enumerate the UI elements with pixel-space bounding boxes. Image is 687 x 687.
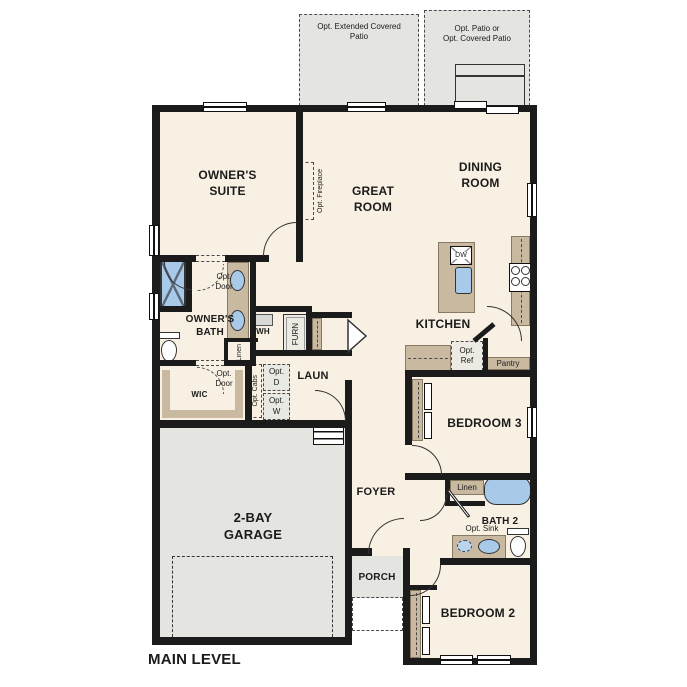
opt-washer: Opt. W (263, 393, 290, 420)
floor-plan: Opt. Extended Covered Patio Opt. Patio o… (0, 0, 687, 687)
opt-refrigerator-label: Opt. Ref (459, 346, 474, 367)
opt-opening-suite (196, 255, 225, 262)
wall-coat-closet-top (312, 312, 352, 318)
coat-closet-bifold-icon (347, 318, 369, 354)
wall-foyer-right (403, 548, 410, 658)
window-great-room (347, 102, 386, 112)
garage-label: 2-BAY GARAGE (205, 510, 301, 544)
opt-refrigerator: Opt. Ref (451, 341, 483, 371)
wall-wic-right (245, 366, 252, 422)
window-suite-left (149, 225, 159, 256)
bedroom3-closet-slider-a (424, 383, 432, 410)
wall-bedroom3-left (405, 377, 412, 445)
wall-garage-right (345, 420, 352, 645)
island-sink (455, 267, 472, 294)
opt-fireplace-label: Opt. Fireplace (317, 169, 324, 213)
water-heater (253, 314, 273, 326)
wall-laundry-hall (345, 380, 352, 420)
window-bedroom2-b (477, 655, 511, 665)
linen-owners-box: Linen (228, 340, 250, 366)
dishwasher-label: DW (454, 252, 468, 259)
coat-closet-shelf (312, 318, 322, 350)
patio-right-label: Opt. Patio or Opt. Covered Patio (426, 24, 528, 45)
laundry-label: LAUN (292, 369, 334, 383)
wall-suite-bottom-b (225, 255, 269, 262)
wall-suite-right (296, 112, 303, 262)
bedroom2-label: BEDROOM 2 (420, 606, 536, 622)
bath2-linen-closet: Linen (450, 480, 484, 495)
furnace: FURN (283, 314, 308, 354)
dishwasher: DW (450, 246, 472, 265)
window-bath-left (149, 293, 159, 320)
window-dining (527, 183, 537, 217)
bath2-opt-sink-oval (457, 540, 472, 552)
opt-door-bath-label: Opt. Door (206, 272, 242, 293)
bedroom3-label: BEDROOM 3 (432, 416, 537, 432)
wall-linen2-bottom (445, 501, 485, 506)
garage-door-outline (172, 556, 333, 637)
wic-label: WIC (172, 390, 227, 400)
main-level-label: MAIN LEVEL (148, 650, 278, 670)
porch-label: PORCH (351, 571, 403, 584)
sliding-door-panel-a (454, 101, 487, 109)
linen-owners-label: Linen (236, 344, 243, 361)
wall-garage-bottom (152, 637, 352, 645)
bathtub (484, 476, 531, 505)
garage-entry-steps (313, 425, 344, 445)
bedroom2-closet-slider-b (422, 627, 430, 655)
opt-dryer-label: Opt. D (269, 367, 284, 388)
opt-fireplace-labelbox: Opt. Fireplace (314, 158, 326, 224)
wall-left (152, 105, 160, 645)
pantry-label: Pantry (496, 359, 519, 368)
opt-opening-wic (196, 360, 224, 366)
kitchen-label: KITCHEN (408, 317, 478, 333)
wall-bedroom3-top (405, 370, 530, 377)
great-room-label: GREAT ROOM (333, 184, 413, 215)
owners-bath-label: OWNER'S BATH (170, 313, 250, 339)
wall-utility-bottom (250, 350, 352, 356)
kitchen-counter-bottom (405, 345, 451, 371)
bedroom2-closet-shelf (410, 590, 421, 658)
opt-washer-label: Opt. W (269, 396, 284, 417)
patio-slab-outline (455, 64, 525, 105)
wall-bedroom2-top (440, 558, 537, 565)
wall-pantry-left (483, 338, 488, 372)
bedroom3-closet-slider-b (424, 412, 432, 439)
window-suite-top (203, 102, 247, 112)
pantry-shelf: Pantry (486, 357, 530, 370)
window-bedroom2-a (440, 655, 473, 665)
opt-door-wic-label: Opt. Door (206, 369, 242, 390)
porch-extension-outline (352, 598, 403, 631)
bath2-toilet-tank (507, 528, 529, 535)
furnace-label: FURN (291, 323, 300, 345)
opt-sink-label: Opt. Sink (456, 524, 508, 534)
dining-room-label: DINING ROOM (438, 160, 523, 191)
wall-bath-wic-a (152, 360, 196, 366)
owners-suite-label: OWNER'S SUITE (180, 168, 275, 199)
stove (509, 263, 531, 292)
bath2-linen-label: Linen (457, 483, 477, 492)
bath2-sink (478, 539, 500, 554)
opt-cabinets-label: Opt. Cabs (252, 375, 259, 407)
bedroom3-closet-shelf (412, 379, 423, 441)
wall-garage-top (152, 420, 352, 428)
sliding-door-panel-b (486, 106, 519, 114)
patio-left-label: Opt. Extended Covered Patio (302, 22, 416, 43)
patio-slab-line (456, 75, 524, 77)
wall-utility-top (250, 306, 312, 312)
opt-dryer: Opt. D (263, 364, 290, 391)
foyer-label: FOYER (350, 485, 402, 499)
